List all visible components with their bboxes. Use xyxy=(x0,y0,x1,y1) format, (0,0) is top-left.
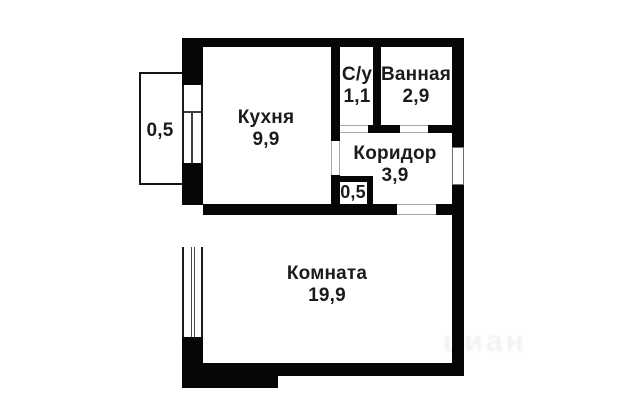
room-area: 3,9 xyxy=(353,165,436,187)
wall-top xyxy=(182,38,464,47)
closet-area-label: 0,5 xyxy=(340,182,366,202)
room-name: Кухня xyxy=(238,107,295,129)
wall-mid-horizontal-right xyxy=(436,204,452,215)
window-mullion xyxy=(194,247,195,337)
room-area: 19,9 xyxy=(287,285,367,307)
living-room-label: Комната 19,9 xyxy=(287,263,367,307)
wall-left-lower xyxy=(182,337,203,363)
wall-bottom-left-block xyxy=(182,363,278,388)
room-window xyxy=(182,247,203,337)
bathroom-door-opening xyxy=(400,125,428,133)
kitchen-corridor-door-opening xyxy=(331,141,340,175)
balcony-area-label: 0,5 xyxy=(146,120,173,142)
wall-wc-bathroom xyxy=(373,47,381,125)
room-area: 0,5 xyxy=(340,182,366,202)
room-name: С/у xyxy=(342,64,372,86)
window-mullion xyxy=(191,113,193,163)
bathroom-label: Ванная 2,9 xyxy=(381,64,451,108)
corridor-label: Коридор 3,9 xyxy=(353,143,436,187)
kitchen-label: Кухня 9,9 xyxy=(238,107,295,151)
wall-left-upper-a xyxy=(182,38,203,85)
wall-right-upper xyxy=(452,38,464,147)
room-area: 0,5 xyxy=(146,120,173,142)
room-door-opening xyxy=(397,204,436,215)
wc-door-opening xyxy=(340,125,368,133)
room-name: Коридор xyxy=(353,143,436,165)
room-name: Комната xyxy=(287,263,367,285)
floor-plan: Кухня 9,9 С/у 1,1 Ванная 2,9 Коридор 3,9… xyxy=(0,0,640,418)
wall-bottom-right xyxy=(278,363,464,376)
watermark: циан xyxy=(443,320,593,364)
room-area: 1,1 xyxy=(342,86,372,108)
room-name: Ванная xyxy=(381,64,451,86)
window-mullion xyxy=(191,247,192,337)
wall-wc-bathroom-bottom-b xyxy=(428,125,452,133)
wall-mid-horizontal-left xyxy=(203,204,397,215)
wc-label: С/у 1,1 xyxy=(342,64,372,108)
room-area: 9,9 xyxy=(238,129,295,151)
wall-kitchen-corridor-lower xyxy=(331,175,340,204)
wall-kitchen-wc-upper xyxy=(331,47,340,141)
entrance-door-opening xyxy=(452,147,464,185)
kitchen-balcony-door-window xyxy=(182,85,203,163)
wall-left-upper-b xyxy=(182,163,203,205)
room-area: 2,9 xyxy=(381,86,451,108)
wall-wc-bathroom-bottom-a xyxy=(368,125,400,133)
